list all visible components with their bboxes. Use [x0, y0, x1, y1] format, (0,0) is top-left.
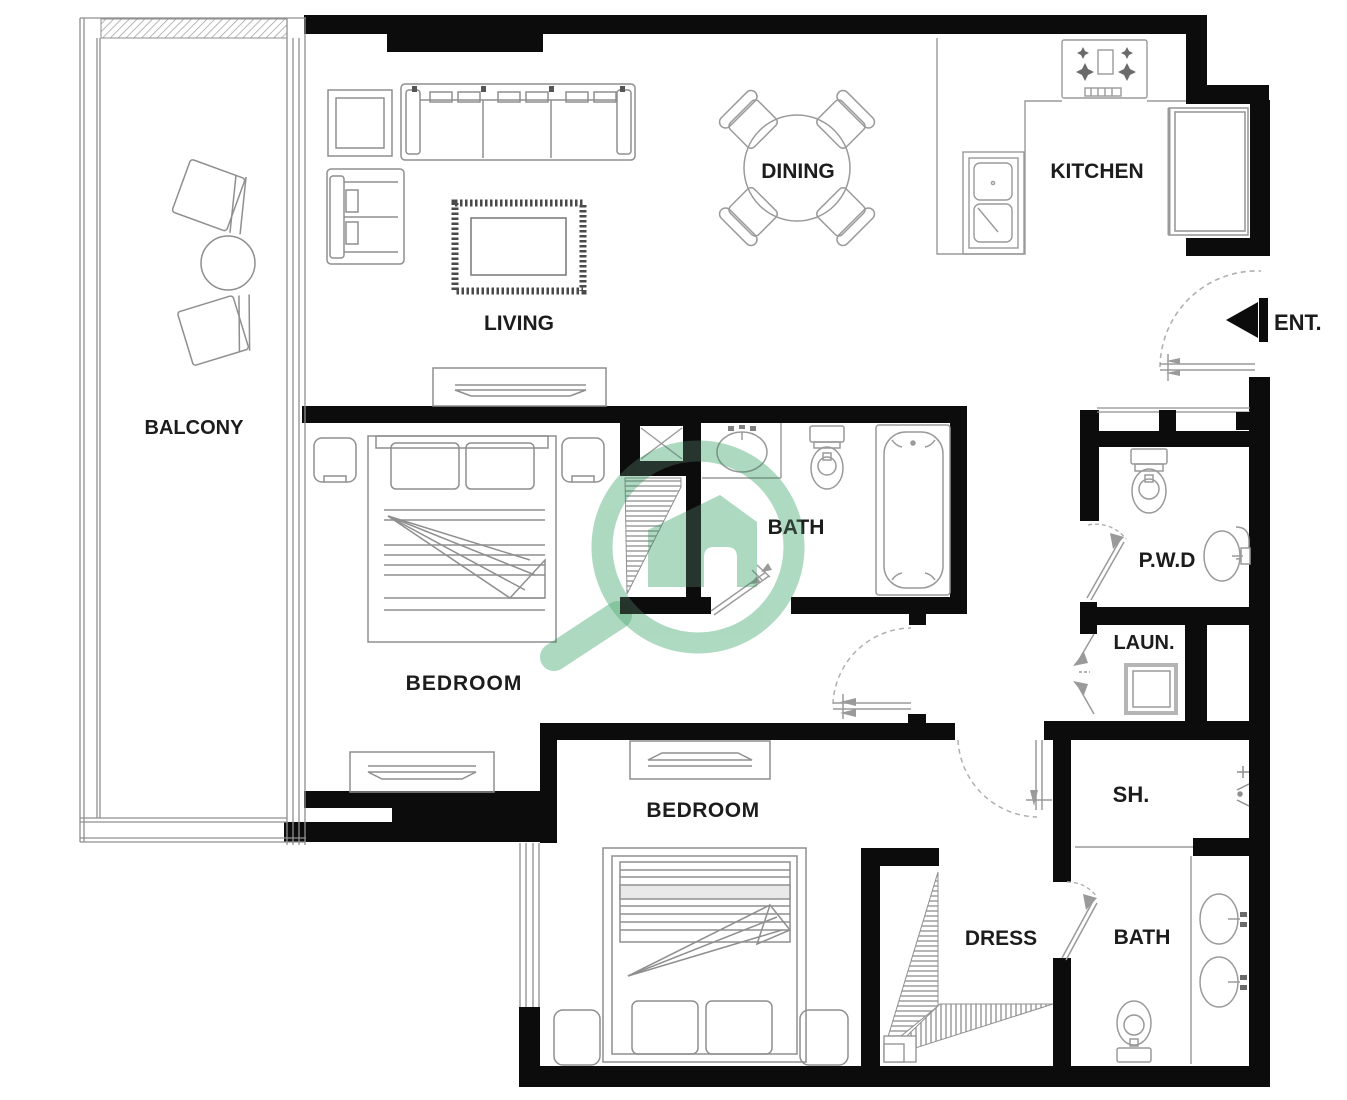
svg-text:KITCHEN: KITCHEN — [1050, 160, 1143, 183]
svg-text:BATH: BATH — [1114, 926, 1171, 949]
svg-text:DINING: DINING — [761, 160, 835, 183]
svg-text:LAUN.: LAUN. — [1113, 632, 1174, 654]
svg-text:ENT.: ENT. — [1274, 310, 1322, 335]
svg-text:DRESS: DRESS — [965, 927, 1037, 950]
svg-text:BALCONY: BALCONY — [145, 417, 245, 439]
svg-text:SH.: SH. — [1113, 782, 1150, 807]
svg-text:BEDROOM: BEDROOM — [646, 799, 759, 822]
svg-text:P.W.D: P.W.D — [1139, 549, 1196, 572]
svg-text:BEDROOM: BEDROOM — [406, 672, 523, 695]
svg-text:LIVING: LIVING — [484, 312, 554, 335]
